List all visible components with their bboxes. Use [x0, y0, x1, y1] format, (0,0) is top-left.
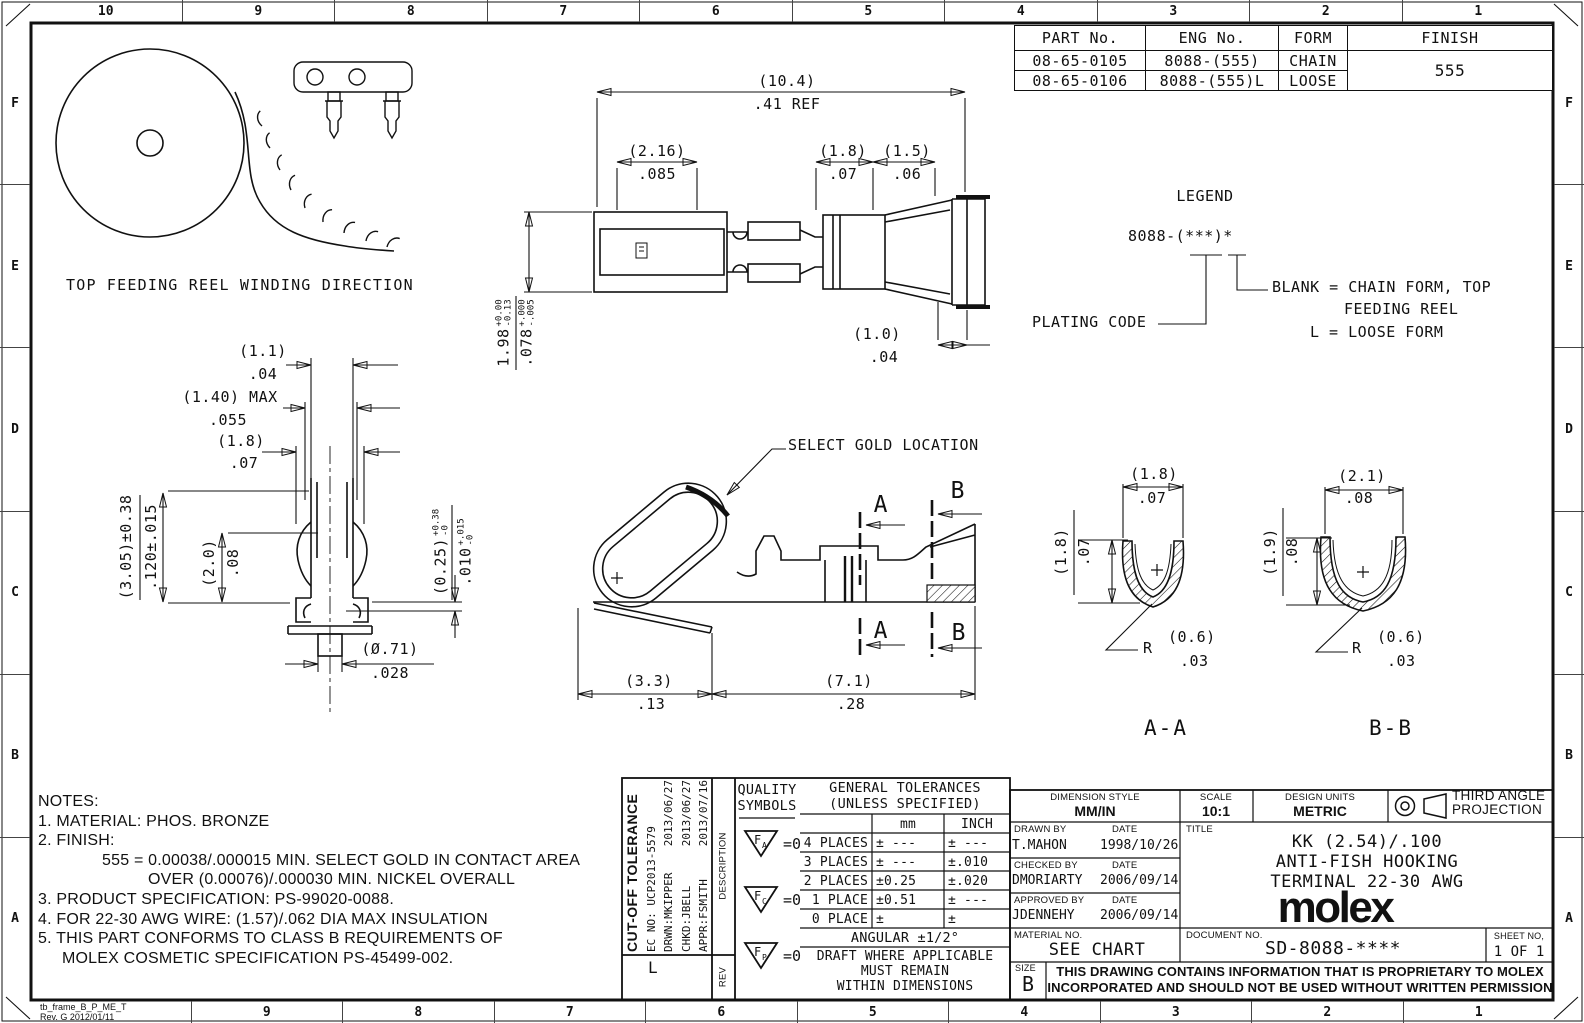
note-line: OVER (0.00076)/.000030 MIN. NICKEL OVERA…: [148, 870, 618, 890]
checked-by-value: DMORIARTY: [1012, 873, 1082, 888]
eng-number-cell: 8088-(555)L: [1146, 71, 1279, 90]
dim-plan-height-mm: 1.98 +0.00-0.13: [496, 299, 513, 366]
tolerances-title-1: GENERAL TOLERANCES: [829, 780, 981, 796]
zone-number: 9: [183, 0, 336, 22]
zone-number: 2: [1252, 1001, 1404, 1023]
dim-bb-radius-mm: (0.6): [1377, 630, 1425, 646]
section-a-marker-bottom: A: [874, 619, 889, 643]
front-view: [288, 446, 372, 712]
dim-plan-18-inch: .07: [829, 167, 858, 183]
part-number-cell: 08-65-0106: [1015, 71, 1146, 90]
drawing-title-line2: ANTI-FISH HOOKING: [1276, 852, 1459, 872]
sheet-no-label: SHEET NO,: [1494, 931, 1544, 941]
dim-plan-15-mm: (1.5): [883, 144, 931, 160]
zone-number: 5: [798, 1001, 950, 1023]
notes-block: NOTES: 1. MATERIAL: PHOS. BRONZE 2. FINI…: [38, 792, 618, 968]
zone-number: 1: [1403, 0, 1555, 22]
zone-letter: A: [1554, 838, 1584, 1000]
dim-side-71-mm: (7.1): [825, 674, 873, 690]
molex-logo: molex: [1278, 890, 1393, 926]
dim-value: .010: [458, 547, 474, 585]
legend-code: 8088-(***)*: [1128, 229, 1233, 245]
tolerance-mm-value: ±0.25: [876, 874, 916, 889]
dim-tolerance: +.015-0: [458, 518, 475, 545]
revision-letter: L: [648, 958, 658, 977]
zone-letter: C: [0, 512, 30, 675]
dim-front-025-inch: .010 +.015-0: [458, 518, 475, 585]
description-column-label: DESCRIPTION: [718, 832, 729, 899]
dim-tolerance: +0.00-0.13: [496, 299, 513, 326]
note-line: 3. PRODUCT SPECIFICATION: PS-99020-0088.: [38, 890, 618, 910]
third-angle-projection-icon: [1394, 792, 1450, 822]
dim-plan-barrel-inch: .085: [638, 167, 676, 183]
reel-drawing: [56, 49, 412, 251]
design-units-label: DESIGN UNITS: [1285, 792, 1355, 803]
dim-front-18-inch: .07: [230, 456, 259, 472]
legend-title: LEGEND: [1176, 189, 1233, 205]
size-value: B: [1022, 972, 1034, 996]
tolerance-inch-value: ±.020: [948, 874, 988, 889]
part-number-table: PART No. ENG No. FORM FINISH 08-65-0105 …: [1014, 25, 1553, 91]
drawing-sheet: 10 9 8 7 6 5 4 3 2 1 tb_frame_B_P_ME_T R…: [0, 0, 1584, 1023]
part-number-cell: 08-65-0105: [1015, 51, 1146, 71]
document-no-value: SD-8088-****: [1265, 938, 1401, 959]
tolerance-mm-value: ± ---: [876, 855, 916, 870]
section-aa-label: A-A: [1144, 717, 1188, 739]
plan-dimension-lines: [516, 92, 990, 370]
zone-number: 4: [945, 0, 1098, 22]
dim-aa-height-inch: .07: [1077, 538, 1093, 567]
legend-loose-line: L = LOOSE FORM: [1310, 325, 1443, 341]
zone-number: 7: [495, 1001, 647, 1023]
dim-plan-overall-inch: .41 REF: [754, 97, 821, 113]
document-no-label: DOCUMENT NO.: [1186, 930, 1263, 941]
dim-aa-width-mm: (1.8): [1130, 467, 1178, 483]
dim-aa-radius-mm: (0.6): [1168, 630, 1216, 646]
section-b-marker-top: B: [951, 479, 966, 503]
dimension-style-value: MM/IN: [1074, 803, 1115, 819]
quality-symbol-value: =0: [783, 891, 801, 909]
side-view: [578, 468, 975, 658]
drawn-by-label: DRAWN BY: [1014, 824, 1066, 835]
dim-front-305-mm: (3.05)±0.38: [119, 495, 135, 600]
tolerance-mm-value: ±0.51: [876, 893, 916, 908]
dim-side-33-mm: (3.3): [625, 674, 673, 690]
dim-plan-10-inch: .04: [870, 350, 899, 366]
revision-ec-no: EC NO: UCP2013-5579: [645, 826, 658, 952]
eng-number-cell: 8088-(555): [1146, 51, 1279, 71]
revision-history: CUT-OFF TOLERANCE EC NO: UCP2013-5579 DR…: [624, 780, 710, 952]
quality-symbol-fc: F C =0: [742, 884, 801, 915]
draft-note-2: MUST REMAIN: [861, 964, 949, 979]
sheet-no-value: 1 OF 1: [1494, 944, 1545, 960]
frame-template-rev: Rev. G 2012/01/11: [40, 1013, 191, 1023]
tolerances-title-2: (UNLESS SPECIFIED): [829, 796, 981, 812]
dim-bb-width-mm: (2.1): [1338, 469, 1386, 485]
zone-letter: D: [1554, 348, 1584, 511]
dim-front-18-mm: (1.8): [217, 434, 265, 450]
tolerance-row-label: 4 PLACES: [802, 836, 868, 851]
svg-text:A: A: [762, 841, 767, 850]
carrier-strip: [294, 62, 412, 138]
date-label: DATE: [1112, 824, 1137, 835]
tolerance-row-label: 0 PLACE: [802, 912, 868, 927]
zone-number: 5: [793, 0, 946, 22]
dim-bb-width-inch: .08: [1345, 491, 1374, 507]
projection-text-1: THIRD ANGLE: [1452, 788, 1545, 803]
frame-template-note: tb_frame_B_P_ME_T Rev. G 2012/01/11: [30, 1001, 192, 1023]
side-dimension-lines: [578, 449, 982, 700]
revision-change: CUT-OFF TOLERANCE: [624, 780, 640, 952]
tolerance-mm-value: ±: [876, 912, 884, 927]
svg-text:F: F: [754, 889, 761, 903]
form-cell: LOOSE: [1279, 71, 1348, 90]
zone-number: 9: [192, 1001, 344, 1023]
dim-plan-18-mm: (1.8): [819, 144, 867, 160]
draft-note-1: DRAFT WHERE APPLICABLE: [817, 949, 994, 964]
dim-front-20-inch: .08: [226, 549, 242, 578]
tolerance-col-mm: mm: [900, 817, 916, 832]
note-line: 555 = 0.00038/.000015 MIN. SELECT GOLD I…: [102, 851, 618, 871]
column-header: FINISH: [1348, 26, 1552, 51]
column-header: PART No.: [1015, 26, 1146, 51]
dim-front-20-mm: (2.0): [202, 539, 218, 587]
dim-aa-radius-inch: .03: [1180, 654, 1209, 670]
dim-front-305-inch: .120±.015: [144, 504, 160, 590]
dim-bb-radius-inch: .03: [1387, 654, 1416, 670]
zone-number: 2: [1250, 0, 1403, 22]
tolerance-inch-value: ±.010: [948, 855, 988, 870]
title-label: TITLE: [1186, 824, 1213, 835]
triangle-symbol-icon: F P: [742, 940, 780, 971]
dim-front-140-mm: (1.40) MAX: [182, 390, 277, 406]
plan-view: [594, 196, 990, 308]
column-header: FORM: [1279, 26, 1348, 51]
zone-number: 1: [1404, 1001, 1555, 1023]
zone-letter: A: [0, 838, 30, 1000]
scale-label: SCALE: [1200, 792, 1232, 803]
dim-front-071-inch: .028: [371, 666, 409, 682]
tolerance-inch-value: ± ---: [948, 836, 988, 851]
drawing-title-line1: KK (2.54)/.100: [1292, 832, 1442, 852]
note-line: 1. MATERIAL: PHOS. BRONZE: [38, 812, 618, 832]
dim-plan-15-inch: .06: [893, 167, 922, 183]
material-no-value: SEE CHART: [1049, 940, 1146, 960]
dim-front-140-inch: .055: [209, 413, 247, 429]
projection-text-2: PROJECTION: [1452, 802, 1542, 817]
quality-symbol-value: =0: [783, 835, 801, 853]
drawn-by-value: T.MAHON: [1012, 838, 1067, 853]
dim-front-071-mm: (Ø.71): [361, 642, 418, 658]
tolerance-angular: ANGULAR ±1/2°: [851, 930, 959, 946]
zone-band-top: 10 9 8 7 6 5 4 3 2 1: [30, 0, 1554, 22]
drawn-date-value: 1998/10/26: [1100, 838, 1178, 853]
draft-note-3: WITHIN DIMENSIONS: [837, 979, 973, 994]
zone-number: 6: [646, 1001, 798, 1023]
tolerance-col-inch: INCH: [961, 817, 993, 832]
revision-drawn: DRWN:MKIPPER: [662, 873, 675, 952]
note-line: 2. FINISH:: [38, 831, 618, 851]
checked-date-value: 2006/09/14: [1100, 873, 1178, 888]
approved-by-value: JDENNEHY: [1012, 908, 1075, 923]
dim-bb-height-mm: (1.9): [1263, 528, 1279, 576]
dim-plan-10-mm: (1.0): [853, 327, 901, 343]
dim-value: .078: [519, 328, 535, 366]
dim-value: (0.25): [433, 538, 449, 595]
proprietary-line1: THIS DRAWING CONTAINS INFORMATION THAT I…: [1056, 964, 1543, 979]
dim-aa-radius-prefix: R: [1143, 641, 1153, 657]
zone-number: 3: [1098, 0, 1251, 22]
dim-front-11-mm: (1.1): [239, 344, 287, 360]
dim-front-11-inch: .04: [249, 367, 278, 383]
revision-approved-date: 2013/07/16: [697, 780, 710, 846]
checked-by-label: CHECKED BY: [1014, 860, 1078, 871]
section-a-marker-top: A: [874, 493, 889, 517]
legend-blank-line2: FEEDING REEL: [1344, 302, 1458, 318]
form-cell: CHAIN: [1279, 51, 1348, 71]
zone-letter: E: [1554, 185, 1584, 348]
triangle-symbol-icon: F A: [742, 828, 780, 859]
proprietary-line2: INCORPORATED AND SHOULD NOT BE USED WITH…: [1047, 980, 1552, 995]
note-line: 5. THIS PART CONFORMS TO CLASS B REQUIRE…: [38, 929, 618, 949]
dim-bb-height-inch: .08: [1285, 538, 1301, 567]
zone-letter: E: [0, 185, 30, 348]
svg-text:F: F: [754, 945, 761, 959]
section-b-marker-bottom: B: [952, 621, 967, 645]
quality-label-2: SYMBOLS: [738, 798, 797, 814]
quality-symbol-fp: F P =0: [742, 940, 801, 971]
tolerance-inch-value: ±: [948, 912, 956, 927]
dim-plan-barrel-mm: (2.16): [628, 144, 685, 160]
zone-number: 8: [343, 1001, 495, 1023]
dim-side-71-inch: .28: [837, 697, 866, 713]
note-line: 4. FOR 22-30 AWG WIRE: (1.57)/.062 DIA M…: [38, 910, 618, 930]
approved-date-value: 2006/09/14: [1100, 908, 1178, 923]
note-line: MOLEX COSMETIC SPECIFICATION PS-45499-00…: [62, 949, 618, 969]
tolerance-mm-value: ± ---: [876, 836, 916, 851]
zone-number: 3: [1101, 1001, 1253, 1023]
quality-symbol-fa: F A =0: [742, 828, 801, 859]
tolerance-inch-value: ± ---: [948, 893, 988, 908]
reel-caption: TOP FEEDING REEL WINDING DIRECTION: [66, 278, 414, 294]
legend-plating-label: PLATING CODE: [1032, 315, 1146, 331]
zone-number: 8: [335, 0, 488, 22]
dim-tolerance: +.000-.005: [519, 299, 536, 326]
dim-aa-width-inch: .07: [1138, 491, 1167, 507]
section-bb-label: B-B: [1369, 717, 1413, 739]
zone-number: 7: [488, 0, 641, 22]
zone-letter: B: [0, 675, 30, 838]
tolerance-row-label: 2 PLACES: [802, 874, 868, 889]
triangle-symbol-icon: F C: [742, 884, 780, 915]
select-gold-callout: SELECT GOLD LOCATION: [788, 438, 979, 454]
dim-front-025-mm: (0.25) +0.38-0: [433, 509, 450, 595]
quality-label-1: QUALITY: [738, 782, 797, 798]
zone-number: 10: [30, 0, 183, 22]
zone-band-right: F E D C B A: [1554, 22, 1584, 1000]
rev-column-label: REV: [718, 967, 729, 987]
revision-drawn-date: 2013/06/27: [662, 780, 675, 846]
date-label: DATE: [1112, 860, 1137, 871]
date-label: DATE: [1112, 895, 1137, 906]
dimension-style-label: DIMENSION STYLE: [1050, 792, 1140, 803]
zone-number: 6: [640, 0, 793, 22]
dim-tolerance: +0.38-0: [433, 509, 450, 536]
svg-text:F: F: [754, 833, 761, 847]
zone-band-left: F E D C B A: [0, 22, 30, 1000]
legend-lines: [1158, 255, 1268, 324]
column-header: ENG No.: [1146, 26, 1279, 51]
section-aa-view: [1074, 484, 1183, 650]
revision-checked: CHKD:JBELL: [680, 886, 693, 952]
zone-letter: B: [1554, 675, 1584, 838]
design-units-value: METRIC: [1293, 803, 1347, 819]
zone-letter: F: [0, 22, 30, 185]
tolerance-row-label: 1 PLACE: [802, 893, 868, 908]
dim-aa-height-mm: (1.8): [1054, 528, 1070, 576]
svg-text:C: C: [762, 897, 767, 906]
zone-letter: C: [1554, 512, 1584, 675]
tolerance-row-label: 3 PLACES: [802, 855, 868, 870]
dim-plan-overall-mm: (10.4): [758, 74, 815, 90]
zone-band-bottom: tb_frame_B_P_ME_T Rev. G 2012/01/11 9 8 …: [30, 1001, 1554, 1023]
approved-by-label: APPROVED BY: [1014, 895, 1084, 906]
zone-number: 4: [949, 1001, 1101, 1023]
zone-letter: D: [0, 348, 30, 511]
legend-blank-line1: BLANK = CHAIN FORM, TOP: [1272, 280, 1491, 296]
svg-text:P: P: [762, 953, 767, 962]
dim-bb-radius-prefix: R: [1352, 641, 1362, 657]
finish-cell: 555: [1348, 51, 1552, 90]
dim-side-33-inch: .13: [637, 697, 666, 713]
revision-approved: APPR:FSMITH: [697, 879, 710, 952]
dim-value: 1.98: [496, 328, 512, 366]
quality-symbol-value: =0: [783, 947, 801, 965]
notes-header: NOTES:: [38, 792, 618, 812]
dim-plan-height-inch: .078 +.000-.005: [519, 299, 536, 366]
scale-value: 10:1: [1202, 803, 1230, 819]
revision-checked-date: 2013/06/27: [680, 780, 693, 846]
zone-letter: F: [1554, 22, 1584, 185]
